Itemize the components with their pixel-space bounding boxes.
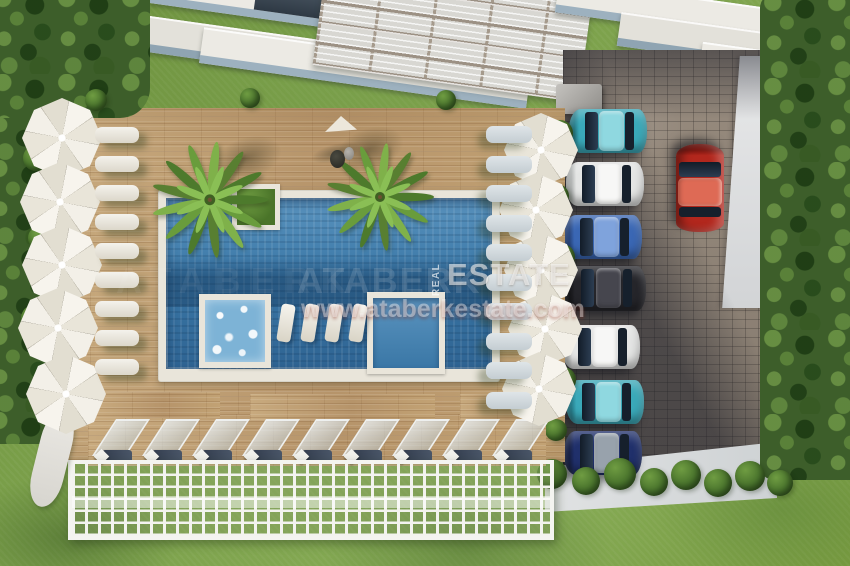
watermark-real-label: REAL — [431, 262, 442, 296]
sun-lounger — [486, 362, 532, 379]
sun-lounger — [95, 301, 139, 317]
pool-umbrella — [26, 354, 106, 434]
sun-lounger — [486, 185, 532, 202]
sun-lounger — [486, 333, 532, 350]
sun-lounger — [95, 243, 139, 259]
sun-lounger — [95, 156, 139, 172]
sun-lounger — [486, 126, 532, 143]
watermark-estate-label: ESTATE — [447, 257, 571, 293]
sun-lounger — [95, 330, 139, 346]
person-figure — [344, 147, 354, 160]
sun-lounger — [486, 156, 532, 173]
sun-lounger — [95, 185, 139, 201]
sun-lounger — [95, 127, 139, 143]
person-figure — [330, 150, 345, 168]
sun-lounger — [486, 215, 532, 232]
sun-lounger — [95, 359, 139, 375]
sun-lounger — [486, 392, 532, 409]
sun-lounger — [95, 214, 139, 230]
watermark-url: www.ataberkestate.com — [301, 295, 585, 324]
pool-umbrella — [18, 288, 98, 368]
aerial-residence-render: ATABERK ATABERK REAL ESTATE www.ataberke… — [0, 0, 850, 566]
